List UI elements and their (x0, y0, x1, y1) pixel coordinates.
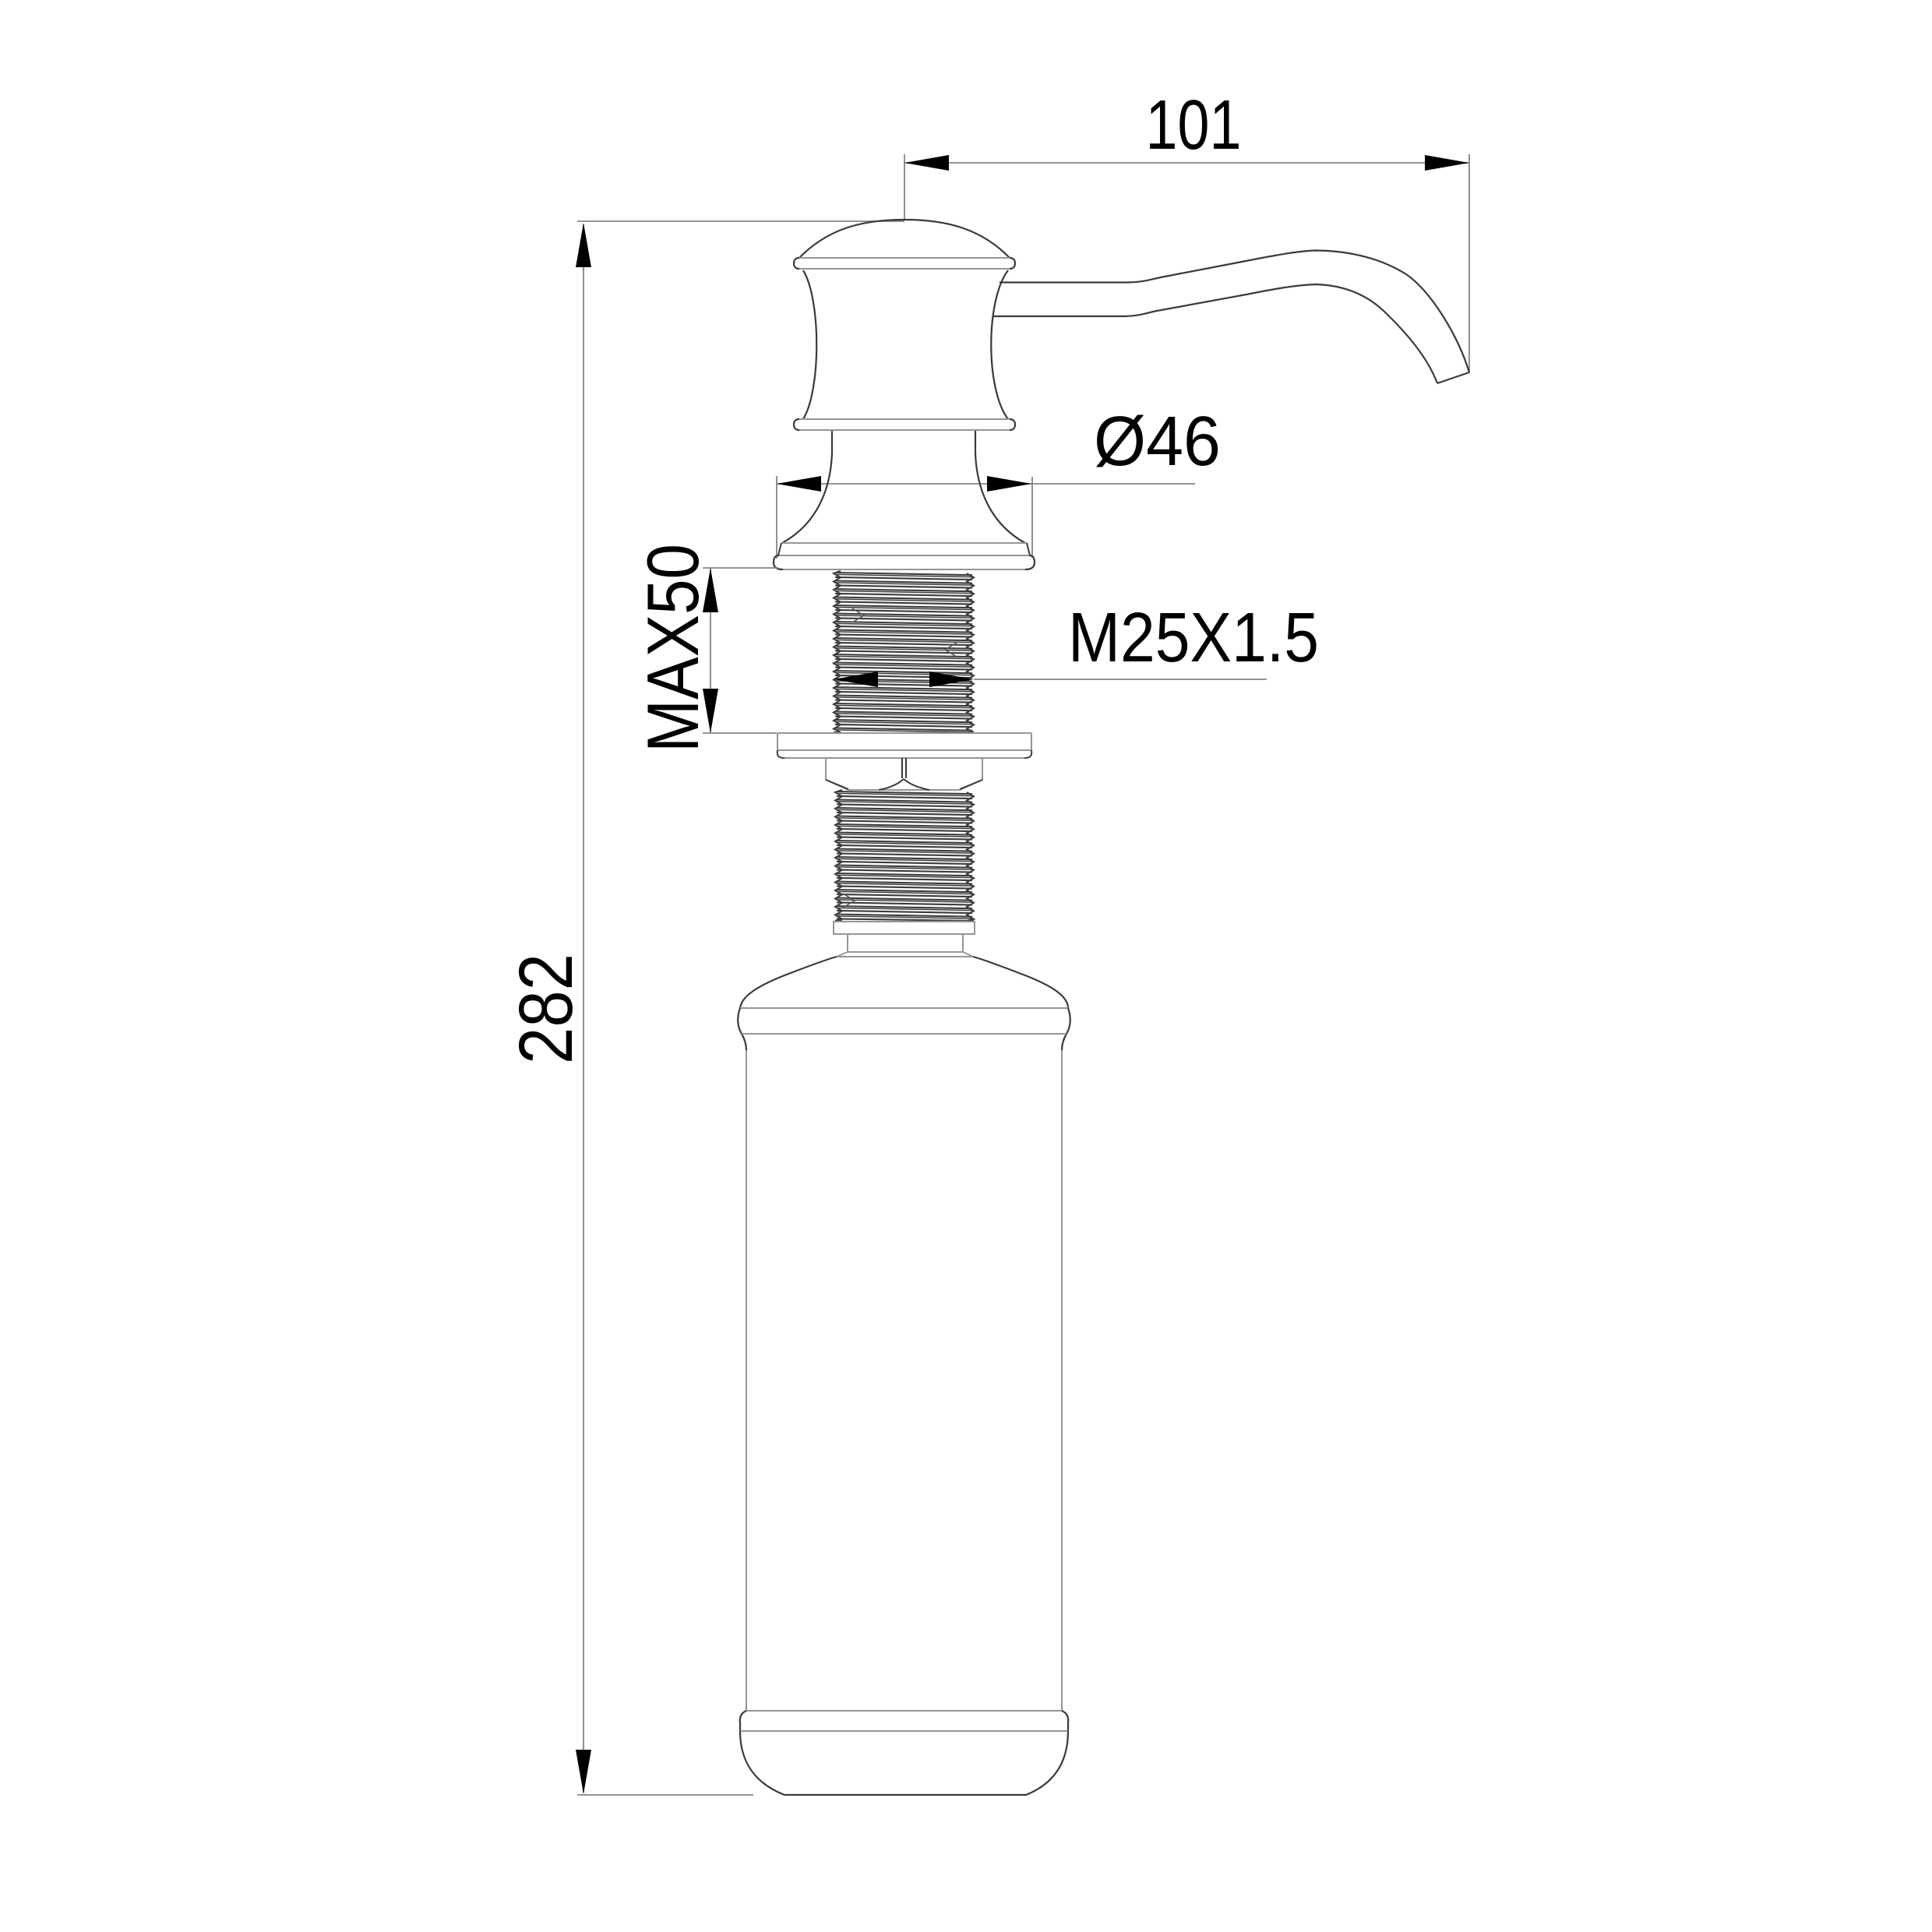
svg-text:101: 101 (1146, 86, 1242, 164)
svg-text:MAX50: MAX50 (632, 544, 714, 753)
svg-text:282: 282 (503, 954, 588, 1064)
svg-text:Ø46: Ø46 (1094, 403, 1221, 481)
svg-text:M25X1.5: M25X1.5 (1068, 599, 1319, 677)
